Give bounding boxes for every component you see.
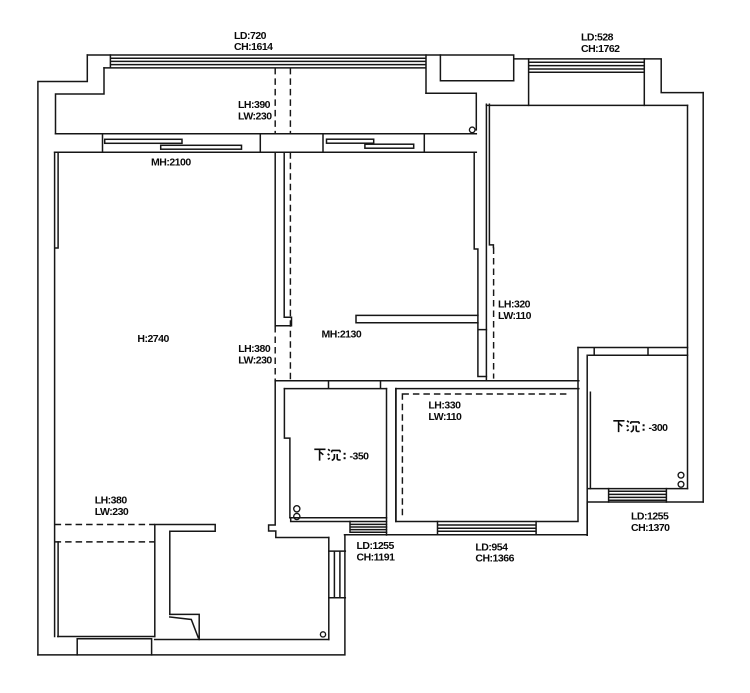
svg-text:H:2740: H:2740: [137, 333, 169, 345]
svg-text:CH:1370: CH:1370: [631, 522, 670, 534]
svg-text:LD:954: LD:954: [475, 541, 508, 553]
svg-text:LW:230: LW:230: [95, 506, 129, 518]
svg-text:LH:380: LH:380: [95, 495, 128, 507]
svg-text:CH:1762: CH:1762: [581, 43, 620, 55]
svg-text:MH:2100: MH:2100: [151, 157, 191, 169]
svg-text:CH:1366: CH:1366: [475, 553, 514, 565]
svg-text:CH:1614: CH:1614: [234, 41, 273, 53]
svg-text:LH:320: LH:320: [498, 299, 531, 311]
svg-text:-350: -350: [350, 451, 370, 463]
svg-text:LH:380: LH:380: [238, 343, 271, 355]
svg-text:LD:1255: LD:1255: [357, 540, 395, 552]
svg-text:MH:2130: MH:2130: [322, 329, 362, 341]
svg-text:LW:230: LW:230: [238, 110, 272, 122]
svg-text:LW:110: LW:110: [428, 411, 462, 423]
svg-text:LW:230: LW:230: [238, 354, 272, 366]
svg-text:LD:528: LD:528: [581, 32, 614, 44]
svg-text:LW:110: LW:110: [498, 310, 532, 322]
svg-text:-300: -300: [649, 422, 669, 434]
svg-text:LH:330: LH:330: [428, 400, 461, 412]
svg-text:LH:390: LH:390: [238, 99, 271, 111]
svg-text:CH:1191: CH:1191: [357, 552, 396, 564]
svg-text:LD:1255: LD:1255: [631, 511, 669, 523]
